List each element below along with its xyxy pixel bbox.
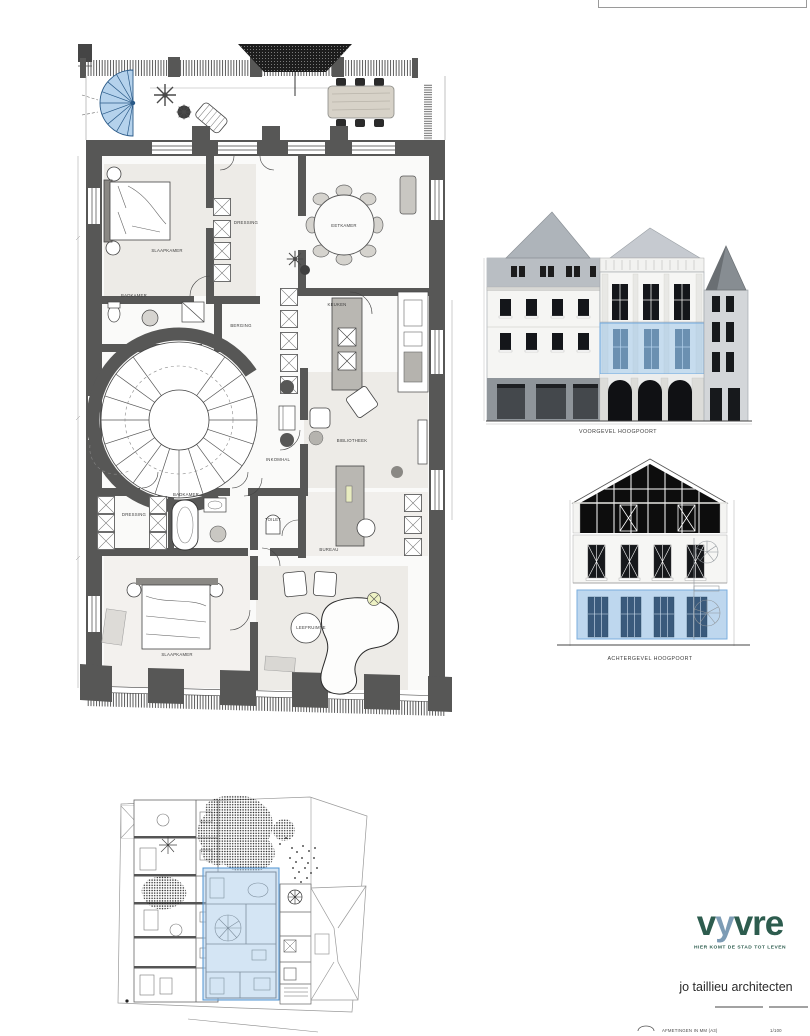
right-building-block xyxy=(280,884,311,1004)
plant-icon xyxy=(287,251,304,268)
front-elevation-caption: VOORGEVEL HOOGPOORT xyxy=(579,429,657,435)
room-label-dressing-2: DRESSING xyxy=(122,512,147,517)
right-building xyxy=(704,246,748,421)
logo-part-y: y xyxy=(715,904,733,943)
rear-elevation: ACHTERGEVEL HOOGPOORT xyxy=(555,455,755,670)
room-label-dressing-1: DRESSING xyxy=(234,220,259,225)
plant-icon xyxy=(300,265,310,275)
left-building xyxy=(487,212,600,421)
terrace-spiral-stair xyxy=(82,70,135,136)
front-elevation: VOORGEVEL HOOGPOORT xyxy=(480,205,756,440)
room-label-leefruimte: LEEFRUIMTE xyxy=(296,625,325,630)
room-label-inkomhal: INKOMHAL xyxy=(266,457,291,462)
room-label-badkamer-1: BADKAMER xyxy=(121,293,147,298)
plant-icon xyxy=(177,105,192,120)
ground-floor-highlight xyxy=(577,590,727,639)
room-label-slaapkamer-1: SLAAPKAMER xyxy=(151,248,182,253)
neighbor-roof-large xyxy=(311,886,366,1000)
logo-part-1: v xyxy=(697,904,715,943)
bureau-cabinets xyxy=(404,494,421,555)
floor-plan: SLAAPKAMER DRESSING EETKAMER BADKAMER BE… xyxy=(68,36,460,728)
stamp-arc-icon xyxy=(638,1026,654,1031)
room-label-berging: BERGING xyxy=(230,323,252,328)
footer-scale: 1/100 xyxy=(770,1028,782,1033)
middle-building xyxy=(600,228,704,421)
cabinet xyxy=(400,176,416,214)
room-label-bibliotheek: BIBLIOTHEEK xyxy=(337,438,368,443)
terrace xyxy=(78,44,445,142)
logo-tagline: HIER KOMT DE STAD TOT LEVEN xyxy=(683,941,797,951)
architect-name: jo taillieu architecten xyxy=(636,980,810,994)
vyvre-logo: vyvre xyxy=(684,906,796,941)
tagline-text: HIER KOMT DE STAD TOT LEVEN xyxy=(694,945,786,951)
central-unit xyxy=(203,868,279,1000)
title-block xyxy=(598,0,807,8)
highlight-floor xyxy=(600,323,704,374)
drawing-sheet: SLAAPKAMER DRESSING EETKAMER BADKAMER BE… xyxy=(0,0,810,1036)
room-label-toilet: TOILET xyxy=(265,517,281,522)
plant-icon xyxy=(154,84,176,106)
site-plan xyxy=(110,790,380,1036)
room-label-slaapkamer-2: SLAAPKAMER xyxy=(161,652,192,657)
room-label-badkamer-2: BADKAMER xyxy=(173,492,199,497)
highlight-unit xyxy=(203,868,279,1000)
gable-glazing xyxy=(573,459,727,535)
logo-part-rest: vre xyxy=(734,904,784,943)
dining-table xyxy=(328,78,394,127)
rear-elevation-caption: ACHTERGEVEL HOOGPOORT xyxy=(607,656,692,662)
room-label-eetkamer: EETKAMER xyxy=(331,223,356,228)
middle-floor xyxy=(573,535,727,583)
room-label-bureau: BUREAU xyxy=(319,547,338,552)
room-label-keuken: KEUKEN xyxy=(328,302,347,307)
footer: AFMETINGEN IN MM (A3) 1/100 xyxy=(620,1000,810,1036)
footer-note: AFMETINGEN IN MM (A3) xyxy=(662,1028,718,1033)
